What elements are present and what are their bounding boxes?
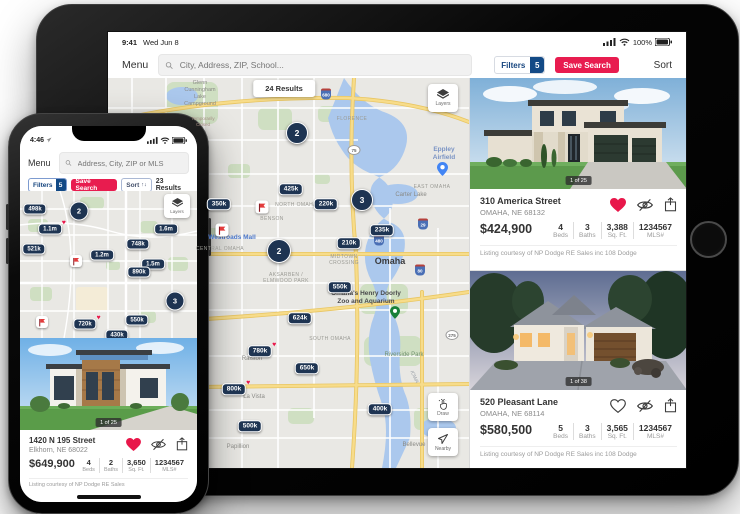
- map-place-label: Bellevue: [402, 442, 425, 450]
- map-price-pin[interactable]: 624k: [288, 312, 312, 324]
- map-price-pin[interactable]: 500k: [238, 420, 262, 432]
- hide-listing-button[interactable]: [151, 438, 166, 451]
- listing-price: $649,900: [29, 458, 75, 470]
- interstate-shield: 680: [321, 89, 331, 100]
- favorite-heart-icon: ♥: [246, 379, 250, 386]
- listing-info: 1420 N 195 Street Elkhorn, NE 68022 $649…: [20, 430, 197, 502]
- listing-card[interactable]: 1 of 25 310 America Street OMAHA, NE 681…: [470, 78, 687, 271]
- listing-stats: 4Beds 3Baths 3,388Sq. Ft. 1234567MLS#: [548, 222, 677, 239]
- search-input[interactable]: [76, 158, 184, 169]
- map-price-pin[interactable]: 498k: [23, 204, 46, 215]
- listing-card[interactable]: 1 of 25 1420 N 195 Street Elkhorn, NE 68…: [20, 338, 197, 502]
- airport-pin-icon: [437, 162, 448, 176]
- map-price-pin[interactable]: 780k♥: [248, 345, 272, 357]
- ipad-status-bar: 9:41 Wed Jun 8 100%: [108, 32, 686, 52]
- iphone-header: Menu: [20, 150, 197, 176]
- map-price-pin[interactable]: 720k♥: [73, 319, 96, 330]
- layers-icon: [437, 89, 449, 100]
- map-place-label: Glenn Cunningham Lake Campground: [184, 80, 216, 108]
- listing-address[interactable]: 520 Pleasant Lane: [480, 397, 558, 407]
- listing-city: OMAHA, NE 68132: [480, 208, 561, 217]
- iphone-map-view[interactable]: Layers 2 3 498k 1.1m♥ 521k 1.2m 748k 1.6…: [20, 191, 197, 338]
- results-count-pill[interactable]: 24 Results: [253, 80, 315, 97]
- listing-results-panel: 1 of 25 310 America Street OMAHA, NE 681…: [469, 78, 687, 468]
- map-place-label: Eppley Airfield: [433, 146, 455, 162]
- listing-city: Elkhorn, NE 68022: [29, 447, 95, 454]
- flag-marker[interactable]: [36, 316, 48, 328]
- map-price-pin[interactable]: 650k: [295, 362, 319, 374]
- listing-photo[interactable]: 1 of 25: [470, 78, 687, 189]
- map-price-pin[interactable]: 1.6m: [154, 224, 178, 235]
- favorite-button[interactable]: [126, 438, 141, 451]
- listing-city: OMAHA, NE 68114: [480, 409, 558, 418]
- listing-info: 520 Pleasant Lane OMAHA, NE 68114: [470, 390, 687, 469]
- interstate-shield: 480: [374, 235, 384, 246]
- photo-count-badge: 1 of 38: [565, 377, 592, 386]
- flag-marker[interactable]: [216, 224, 229, 237]
- map-price-pin[interactable]: 748k: [126, 239, 149, 250]
- hide-listing-button[interactable]: [637, 198, 653, 212]
- map-place-label: SOUTH OMAHA: [309, 336, 351, 342]
- listing-price: $424,900: [480, 222, 532, 236]
- device-mockup-stage: 9:41 Wed Jun 8 100% Menu Filter: [0, 0, 740, 514]
- signal-icon: [147, 137, 158, 144]
- favorite-button[interactable]: [610, 198, 626, 212]
- map-place-label: Ralston: [242, 356, 262, 364]
- map-cluster-marker[interactable]: 3: [351, 189, 373, 211]
- photo-count-badge: 1 of 25: [95, 418, 122, 427]
- iphone-device: 4:46 Menu Filters: [8, 113, 209, 514]
- filters-button[interactable]: Filters 5: [28, 178, 67, 192]
- map-price-pin[interactable]: 220k: [314, 198, 338, 210]
- map-place-label: La Vista: [243, 394, 265, 402]
- flag-marker[interactable]: [256, 201, 269, 214]
- map-price-pin[interactable]: 235k: [370, 224, 394, 236]
- listing-card[interactable]: 1 of 38 520 Pleasant Lane OMAHA, NE 6811…: [470, 271, 687, 469]
- zoo-pin-icon: [390, 306, 400, 319]
- map-place-label: BENSON: [260, 216, 284, 222]
- map-price-pin[interactable]: 400k: [368, 403, 392, 415]
- map-price-pin[interactable]: 521k: [22, 244, 45, 255]
- listing-courtesy: Listing courtesy of NP Dodge RE Sales in…: [480, 245, 677, 257]
- battery-icon: [172, 137, 187, 144]
- us-route-shield: 75: [348, 145, 361, 155]
- filters-count-badge: 5: [56, 179, 66, 191]
- listing-address[interactable]: 310 America Street: [480, 196, 561, 206]
- map-price-pin[interactable]: 550k: [328, 281, 352, 293]
- listing-courtesy: Listing courtesy of NP Dodge RE Sales: [29, 478, 188, 488]
- volume-button: [6, 238, 9, 264]
- share-button[interactable]: [664, 197, 677, 212]
- battery-percent: 100%: [633, 38, 652, 47]
- wifi-icon: [619, 38, 630, 46]
- map-place-label: MIDTOWN CROSSING: [329, 254, 359, 267]
- map-cluster-marker[interactable]: 3: [166, 292, 185, 311]
- save-search-button[interactable]: Save Search: [71, 179, 118, 191]
- map-price-pin[interactable]: 210k: [337, 237, 361, 249]
- filters-label: Filters: [33, 182, 53, 189]
- iphone-clock: 4:46: [30, 137, 44, 144]
- map-place-label: Omaha: [375, 256, 406, 267]
- map-price-pin[interactable]: 890k: [127, 267, 150, 278]
- nearby-button[interactable]: Nearby: [428, 428, 458, 456]
- map-price-pin[interactable]: 800k♥: [222, 383, 246, 395]
- wifi-icon: [160, 137, 170, 144]
- map-place-label: Papillion: [227, 444, 250, 452]
- volume-button: [6, 204, 9, 230]
- map-price-pin[interactable]: 1.2m: [90, 250, 114, 261]
- hide-listing-button[interactable]: [637, 399, 653, 413]
- sort-label: Sort: [126, 182, 139, 189]
- map-price-pin[interactable]: 350k: [207, 198, 231, 210]
- favorite-heart-icon: ♥: [97, 315, 101, 322]
- map-price-pin[interactable]: 430k: [105, 330, 128, 339]
- interstate-shield: 80: [415, 265, 425, 276]
- ipad-date: Wed Jun 8: [143, 38, 179, 47]
- map-price-pin[interactable]: 550k: [125, 315, 148, 326]
- map-place-label: NORTH OMAHA: [275, 202, 317, 208]
- ipad-header: Menu Filters 5 Save Search Sort: [108, 52, 686, 79]
- listing-info: 310 America Street OMAHA, NE 68132: [470, 189, 687, 270]
- favorite-heart-icon: ♥: [272, 341, 276, 348]
- map-place-label: EAST OMAHA: [414, 184, 451, 190]
- map-place-label: Temporarily Closed: [191, 116, 214, 127]
- home-indicator[interactable]: [77, 495, 141, 499]
- layers-icon: [172, 198, 183, 208]
- sort-arrows-icon: ↑↓: [141, 182, 147, 188]
- draw-button[interactable]: Draw: [428, 393, 458, 421]
- listing-photo[interactable]: 1 of 25: [20, 338, 197, 430]
- ipad-home-button[interactable]: [690, 221, 727, 258]
- battery-icon: [655, 38, 672, 46]
- listing-address[interactable]: 1420 N 195 Street: [29, 436, 95, 445]
- map-cluster-marker[interactable]: 2: [286, 122, 308, 144]
- listing-stats: 5Beds 3Baths 3,565Sq. Ft. 1234567MLS#: [548, 423, 677, 440]
- search-field[interactable]: [158, 54, 472, 76]
- search-icon: [65, 159, 72, 167]
- map-cluster-marker[interactable]: 2: [70, 202, 89, 221]
- search-icon: [165, 61, 174, 70]
- layers-button[interactable]: Layers: [428, 84, 458, 112]
- map-place-label: CENTRAL OMAHA: [196, 246, 244, 252]
- map-place-label: Carter Lake: [395, 192, 426, 200]
- map-place-label: FLORENCE: [337, 116, 367, 122]
- filters-button[interactable]: Filters 5: [494, 56, 545, 74]
- sort-button[interactable]: Sort ↑↓: [121, 178, 152, 192]
- search-field[interactable]: [59, 152, 189, 174]
- map-price-pin[interactable]: 1.1m♥: [38, 224, 62, 235]
- location-arrow-icon: [46, 137, 52, 143]
- notch: [72, 126, 146, 141]
- search-input[interactable]: [178, 59, 466, 71]
- ipad-clock: 9:41: [122, 38, 137, 47]
- map-place-label: Riverside Park: [384, 352, 423, 360]
- menu-button[interactable]: Menu: [122, 59, 148, 71]
- photo-count-badge: 1 of 25: [565, 176, 592, 185]
- filters-label: Filters: [501, 61, 525, 70]
- flag-marker[interactable]: [70, 255, 82, 267]
- map-place-label: AKSARBEN / ELMWOOD PARK: [263, 272, 309, 285]
- listing-photo[interactable]: 1 of 38: [470, 271, 687, 390]
- map-price-pin[interactable]: 425k: [279, 183, 303, 195]
- listing-courtesy: Listing courtesy of NP Dodge RE Sales in…: [480, 446, 677, 458]
- menu-button[interactable]: Menu: [28, 158, 51, 168]
- favorite-heart-icon: ♥: [62, 220, 66, 227]
- listing-price: $580,500: [480, 423, 532, 437]
- map-cluster-marker[interactable]: 2: [267, 239, 291, 263]
- save-search-button[interactable]: Save Search: [555, 57, 619, 73]
- share-button[interactable]: [176, 437, 188, 451]
- interstate-shield: 29: [418, 219, 428, 230]
- nearby-arrow-icon: [437, 433, 449, 445]
- favorite-button[interactable]: [610, 399, 626, 413]
- layers-button[interactable]: Layers: [164, 194, 190, 218]
- sort-button[interactable]: Sort: [654, 60, 672, 71]
- draw-hand-icon: [437, 398, 449, 410]
- iphone-screen: 4:46 Menu Filters: [20, 126, 197, 502]
- listing-stats: 4Beds 2Baths 3,650Sq. Ft. 1234567MLS#: [78, 458, 188, 473]
- us-route-shield: 275: [446, 330, 459, 340]
- share-button[interactable]: [664, 398, 677, 413]
- results-count: 23 Results: [156, 178, 189, 192]
- filters-count-badge: 5: [530, 57, 544, 73]
- signal-icon: [603, 38, 616, 46]
